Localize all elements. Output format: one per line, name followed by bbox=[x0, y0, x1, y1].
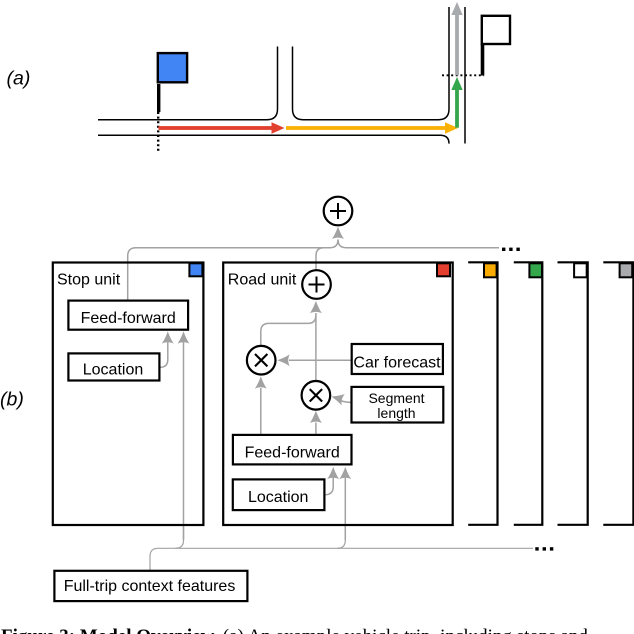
svg-text:Stop unit: Stop unit bbox=[57, 271, 121, 288]
svg-text:(b): (b) bbox=[0, 389, 24, 411]
svg-text:Figure 3: Model Overview. (a): Figure 3: Model Overview. (a) An example… bbox=[1, 626, 588, 634]
svg-text:Car forecast: Car forecast bbox=[353, 355, 441, 372]
svg-text:length: length bbox=[377, 405, 415, 421]
svg-text:(a): (a) bbox=[7, 68, 31, 90]
svg-text:Full-trip context features: Full-trip context features bbox=[64, 578, 236, 595]
svg-text:Feed-forward: Feed-forward bbox=[81, 310, 176, 327]
svg-text:Location: Location bbox=[83, 362, 144, 379]
svg-text:Location: Location bbox=[248, 489, 309, 506]
svg-text:Road unit: Road unit bbox=[228, 271, 297, 288]
svg-text:Segment: Segment bbox=[368, 390, 424, 406]
svg-text:Feed-forward: Feed-forward bbox=[245, 444, 340, 461]
